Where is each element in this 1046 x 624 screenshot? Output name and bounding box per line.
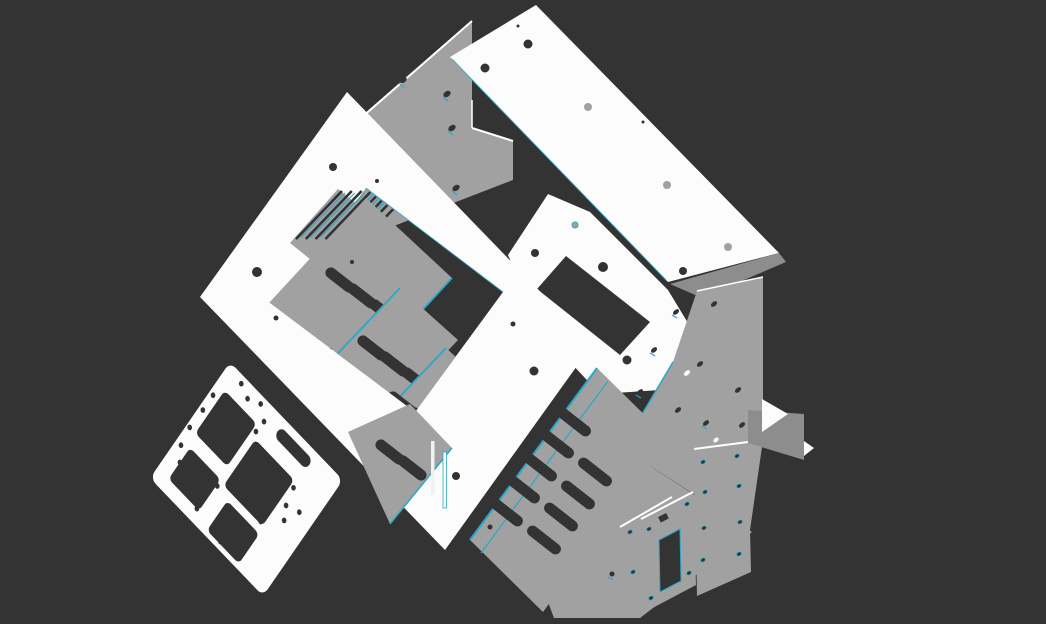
connector-cutout bbox=[659, 529, 681, 592]
model-canvas[interactable]: Rear wall panel with notch and oval hole… bbox=[0, 0, 1046, 624]
part-rear-bracket-plate[interactable]: Rear bracket plate with hole pattern bbox=[694, 442, 751, 596]
cad-viewport[interactable]: Rear wall panel with notch and oval hole… bbox=[0, 0, 1046, 624]
